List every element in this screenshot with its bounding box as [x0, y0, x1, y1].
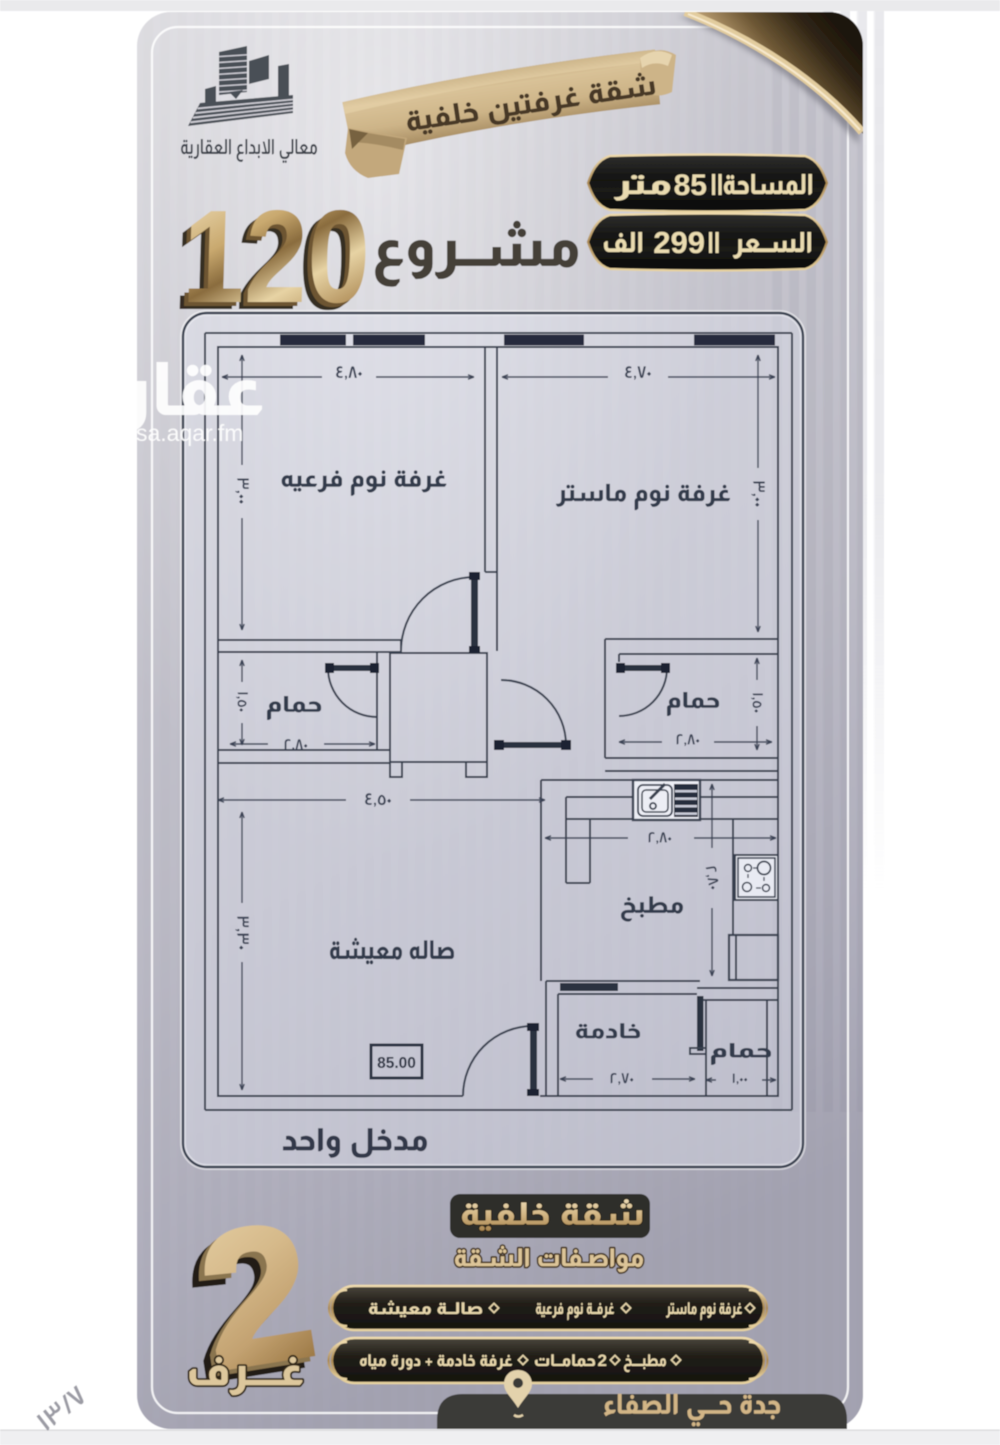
svg-text:120: 120	[181, 182, 373, 330]
svg-text:2: 2	[598, 1351, 607, 1370]
svg-text:85: 85	[674, 169, 707, 202]
svg-text:sa.aqar.fm: sa.aqar.fm	[136, 420, 243, 446]
svg-text:85.00: 85.00	[377, 1055, 416, 1072]
svg-text:299: 299	[653, 225, 705, 260]
